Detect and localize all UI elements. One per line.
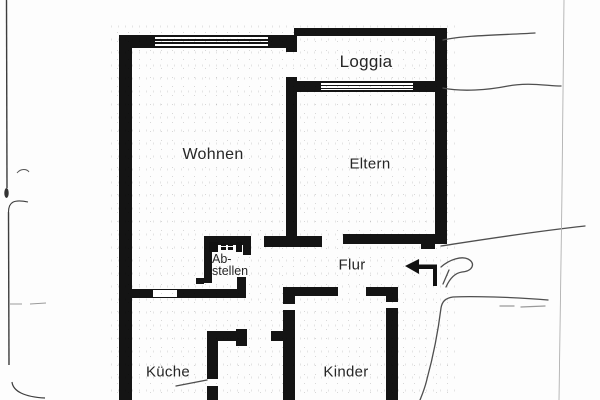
pencil-line-bottom-curve [420,297,548,400]
scan-left-tick [17,170,29,174]
scan-left-margin-blob [4,188,8,198]
scan-right-guide-line [559,0,564,400]
pencil-line-mid [443,84,561,90]
scan-left-bottom-curve [12,382,45,398]
scan-left-margin-line-top [7,0,8,188]
pencil-scribble-arrow [441,258,473,287]
entrance-arrow-icon [405,259,437,286]
pencil-dashes [500,306,545,307]
scanned-floorplan-page: Loggia Wohnen Eltern Ab- stellen Flur Kü… [0,0,600,400]
pencil-kueche-door-line [176,380,207,386]
scan-left-margin-line-bottom [9,212,10,365]
pencil-line-top [443,33,535,40]
annotation-overlay [0,0,600,400]
scan-left-margin-hook [9,201,29,212]
pencil-line-flur [441,226,585,246]
scan-left-dashes [10,303,46,304]
